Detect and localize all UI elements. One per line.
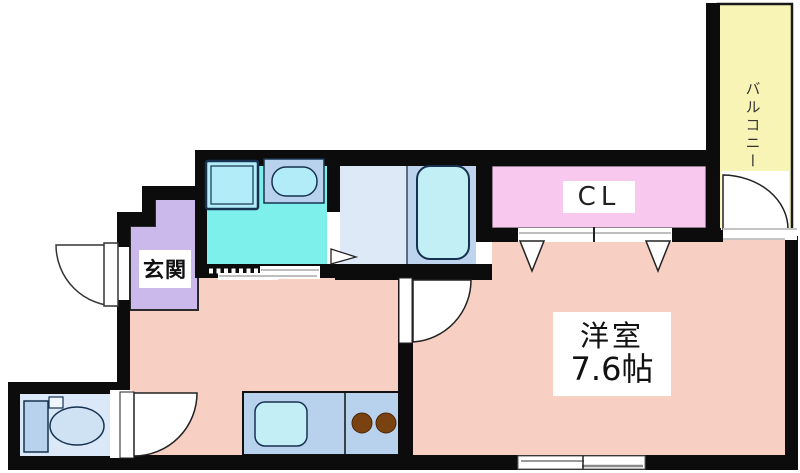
floor-plan-drawing bbox=[0, 0, 800, 473]
bathtub-icon bbox=[417, 166, 469, 259]
toilet-door-leaf bbox=[120, 392, 134, 458]
room-door-leaf bbox=[399, 278, 412, 343]
closet-floor bbox=[492, 166, 706, 228]
stove-burner-icon bbox=[352, 413, 372, 433]
balcony-door-swing-icon bbox=[721, 171, 797, 240]
washing-machine-icon bbox=[206, 161, 258, 209]
floor-plan: 玄関 CL 洋室 7.6帖 バルコニー bbox=[0, 0, 800, 473]
entrance-door-leaf bbox=[104, 243, 118, 306]
stove-burner-icon bbox=[376, 413, 396, 433]
kitchen-sink-icon bbox=[255, 402, 307, 446]
vanity-sink-icon bbox=[264, 159, 324, 203]
sliding-window-icon bbox=[518, 456, 645, 469]
